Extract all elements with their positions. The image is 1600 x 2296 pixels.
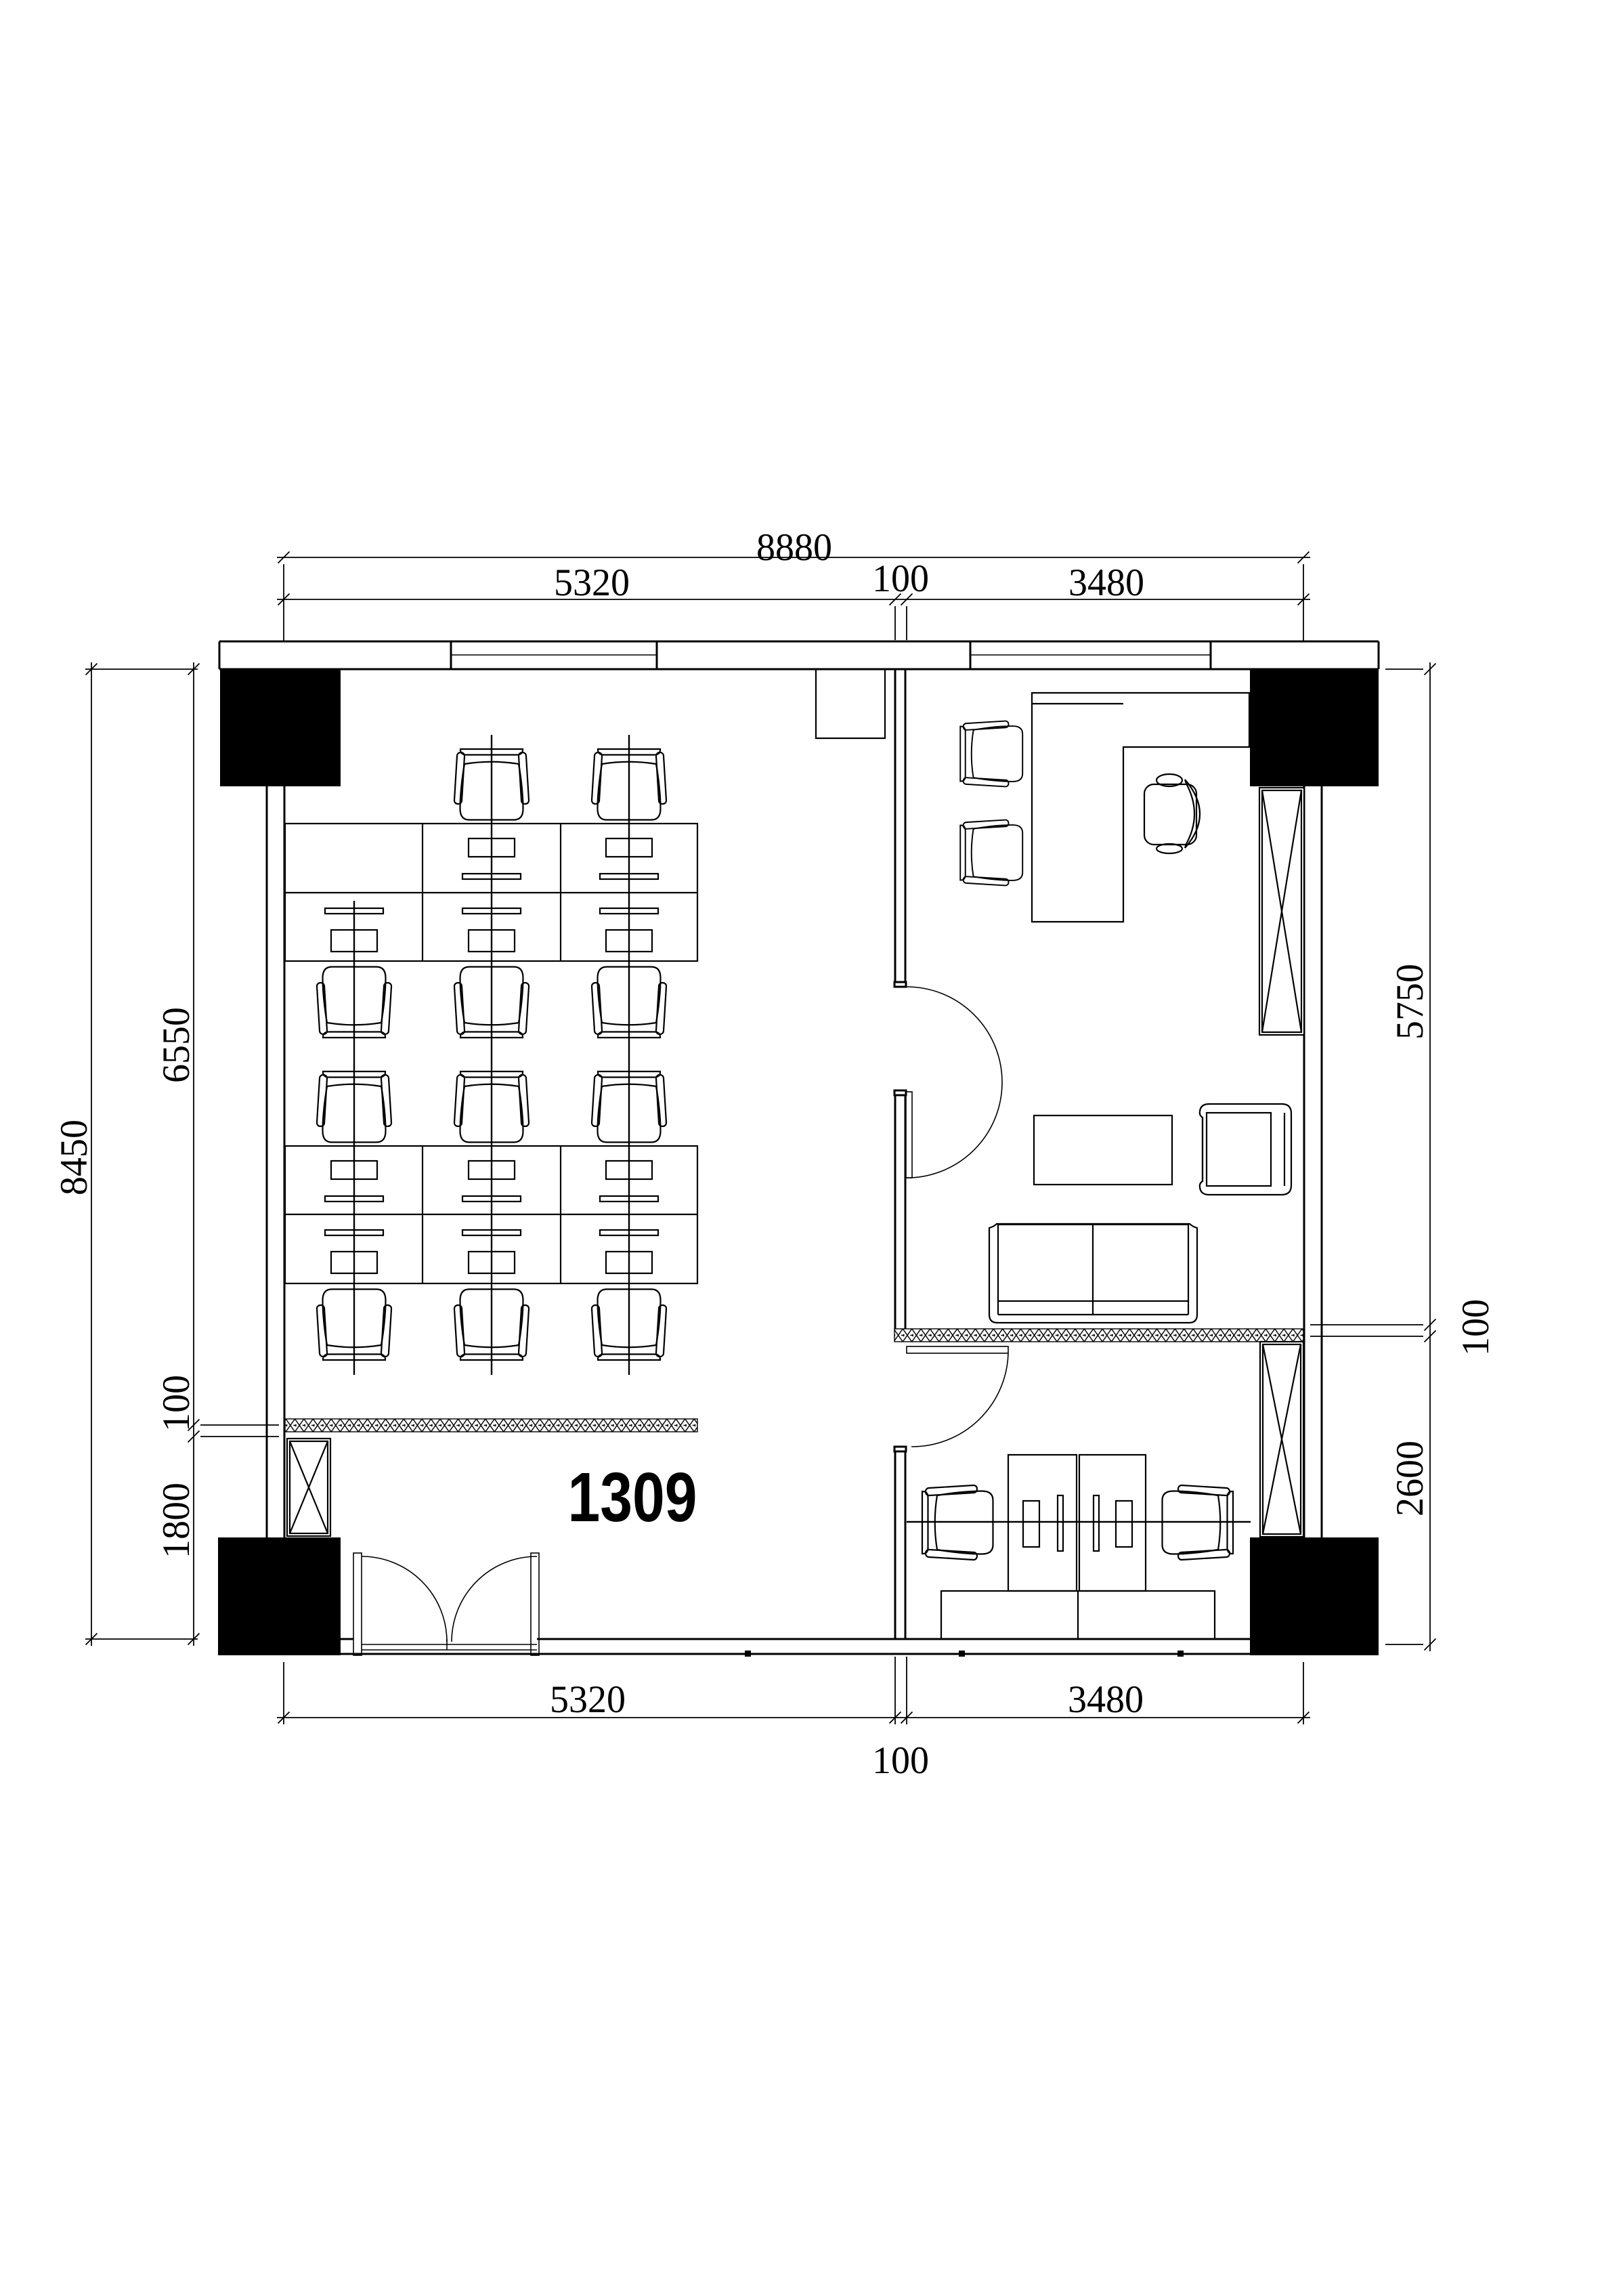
svg-text:1309: 1309 — [568, 1458, 697, 1536]
svg-text:100: 100 — [872, 1739, 929, 1782]
svg-text:3480: 3480 — [1068, 561, 1144, 604]
svg-text:5320: 5320 — [554, 561, 630, 604]
svg-text:5320: 5320 — [550, 1678, 626, 1721]
svg-text:1800: 1800 — [155, 1483, 198, 1558]
svg-text:3480: 3480 — [1068, 1678, 1144, 1721]
svg-text:5750: 5750 — [1389, 964, 1431, 1040]
svg-text:8880: 8880 — [756, 526, 832, 569]
svg-text:100: 100 — [872, 557, 929, 600]
svg-text:100: 100 — [1454, 1299, 1497, 1356]
svg-text:6550: 6550 — [155, 1007, 198, 1083]
svg-text:8450: 8450 — [53, 1120, 95, 1195]
svg-text:100: 100 — [155, 1375, 198, 1432]
svg-text:2600: 2600 — [1389, 1441, 1431, 1516]
